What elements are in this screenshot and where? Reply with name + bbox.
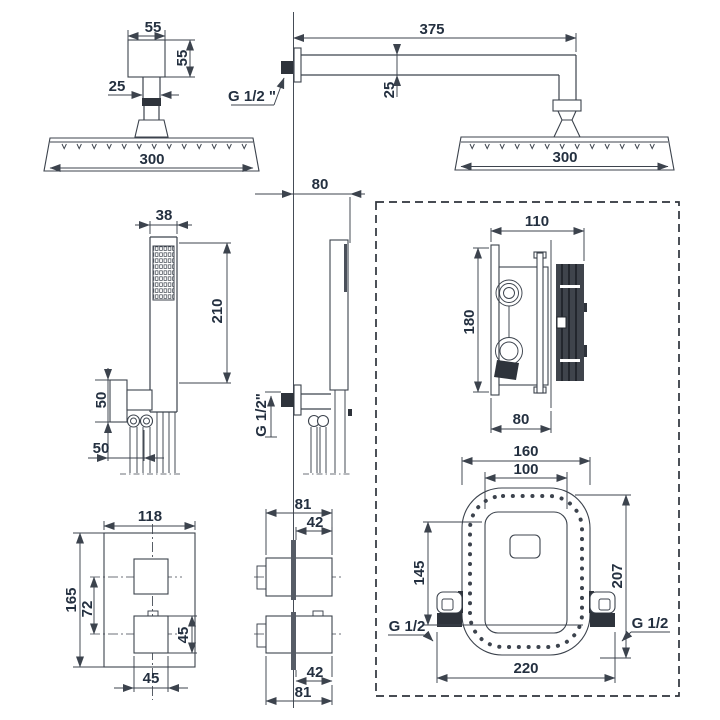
dim-knob-width: 45 — [143, 670, 160, 687]
valve-front-plate — [485, 512, 567, 633]
arm-nut — [553, 100, 581, 111]
head-connector — [554, 120, 580, 137]
front-plate-edge — [537, 253, 543, 393]
dim-handle-length: 210 — [209, 298, 226, 323]
rain-shower-front-view: 55 55 25 300 — [44, 19, 259, 171]
plate-edge-profile — [291, 612, 296, 670]
dim-holder-height: 50 — [93, 392, 110, 409]
dim-valve-width: 110 — [525, 213, 549, 230]
dim-total-depth-bottom: 81 — [295, 684, 312, 701]
lever-handle — [494, 360, 519, 380]
dim-bracket-width: 55 — [145, 19, 162, 36]
dim-holder-offset: 50 — [93, 440, 110, 457]
dim-box-inner-height: 145 — [411, 560, 428, 585]
thread-label-top: G 1/2 " — [228, 88, 276, 105]
spray-face — [153, 246, 174, 300]
wall-flange — [294, 48, 301, 82]
dim-total-depth-top: 81 — [295, 496, 312, 513]
technical-drawing-sheet: 55 55 25 300 375 25 G — [0, 0, 720, 720]
mixer-box-front-view: 160 100 145 207 220 G 1/2 G 1/2 — [388, 443, 670, 683]
thread-label-hand-outlet: G 1/2" — [253, 393, 270, 437]
dim-arm-length: 375 — [419, 21, 444, 38]
lower-knob-profile — [266, 616, 332, 653]
wall-thread-connector — [281, 61, 293, 74]
head-neck — [135, 120, 168, 137]
dim-stem-width: 25 — [109, 78, 126, 95]
dim-arm-height: 25 — [381, 82, 398, 99]
dim-knob-depth-top: 42 — [307, 514, 324, 531]
upper-knob-profile — [266, 558, 332, 596]
dim-valve-height: 180 — [461, 309, 478, 334]
lower-square-knob — [134, 616, 168, 653]
dim-box-outer-height: 207 — [609, 563, 626, 588]
dim-box-plate-width: 160 — [513, 443, 538, 460]
dim-plate-width: 118 — [138, 508, 162, 525]
profile-shading — [344, 244, 347, 292]
holder-wall-plate — [110, 380, 127, 422]
right-thread-block — [590, 613, 615, 627]
dim-bracket-height: 55 — [174, 50, 191, 67]
hose-nut — [318, 416, 329, 427]
hand-shower-front-view: 38 210 50 50 — [88, 207, 231, 474]
dim-handle-width: 38 — [156, 207, 173, 224]
dim-plate-height: 165 — [63, 587, 80, 612]
dim-knob-spacing: 72 — [79, 601, 96, 618]
ceiling-bracket — [128, 40, 165, 77]
dim-head-width-side: 300 — [552, 149, 577, 166]
mixer-valve-side-view: 110 180 80 — [461, 213, 587, 433]
plate-edge-profile — [291, 540, 296, 600]
dim-box-inner-width: 100 — [513, 461, 538, 478]
center-cutout — [510, 535, 540, 558]
shower-system-dimension-drawing: 55 55 25 300 375 25 G — [0, 0, 720, 720]
rain-shower-side-view: 375 25 G 1/2 " 300 80 — [228, 21, 674, 243]
dim-wall-offset: 80 — [312, 176, 329, 193]
trim-plate-side-view: 81 42 42 81 — [254, 496, 344, 705]
dim-knob-depth-bottom: 42 — [307, 664, 324, 681]
hose-nut — [128, 415, 140, 427]
dim-built-in-depth: 80 — [513, 411, 530, 428]
trim-plate-front-view: 118 165 72 45 45 — [63, 508, 197, 700]
thread-label-left: G 1/2 — [389, 618, 426, 635]
dim-knob-height: 45 — [175, 627, 192, 644]
outlet-thread-connector — [281, 393, 294, 407]
hand-shower-side-view: G 1/2" — [253, 240, 352, 474]
holder-arm — [127, 390, 152, 410]
dim-box-width: 220 — [513, 660, 538, 677]
upper-square-knob — [134, 559, 168, 594]
dim-head-width: 300 — [139, 151, 164, 168]
outlet-escutcheon — [294, 385, 301, 415]
hose-nut — [141, 415, 153, 427]
thread-label-right: G 1/2 — [632, 615, 669, 632]
stem-ring — [142, 98, 161, 106]
